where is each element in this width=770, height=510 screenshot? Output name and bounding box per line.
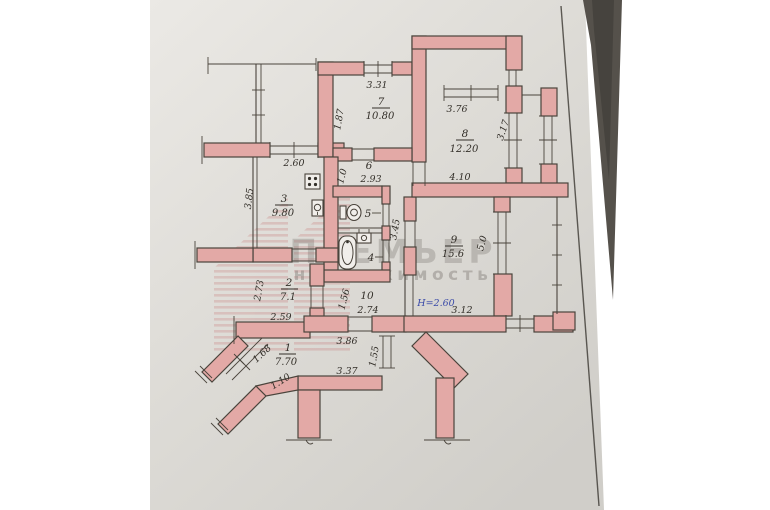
wall (372, 316, 406, 332)
wall (298, 390, 320, 438)
wall (436, 378, 454, 438)
dim-label: 4.10 (448, 172, 470, 183)
wall (412, 183, 568, 197)
toilet-icon (340, 205, 361, 221)
room-area-label: 15.6 (442, 249, 465, 260)
dim-label: 2.93 (359, 174, 381, 185)
wall (374, 148, 412, 161)
room-number-label: 6 (366, 160, 373, 172)
dim-label: 3.31 (366, 80, 387, 91)
room-area-label: 10.80 (366, 111, 395, 122)
wall (318, 62, 333, 157)
wall (404, 316, 506, 332)
wall (310, 264, 324, 286)
wall (197, 248, 253, 262)
wall (298, 376, 382, 390)
room-number-label: 5 (365, 208, 372, 220)
wall (304, 316, 348, 332)
stove-icon (305, 174, 320, 189)
room-number-label: 1 (285, 342, 292, 354)
wall (382, 186, 390, 204)
kitchen-sink-icon (312, 200, 323, 216)
wall (316, 248, 338, 262)
wall (494, 197, 510, 212)
room-area-label: 9.80 (272, 208, 295, 219)
ceiling-height-note: Н=2.60 (416, 298, 454, 309)
room-area-label: 12.20 (450, 144, 479, 155)
room-number-label: 8 (462, 128, 469, 140)
wall (404, 197, 416, 221)
dim-label: 2.59 (269, 312, 291, 323)
dim-label: 2.74 (356, 305, 378, 316)
dim-label: 3.76 (446, 104, 467, 115)
wall (204, 143, 270, 157)
wall (253, 248, 292, 262)
room-number-label: 10 (360, 290, 374, 302)
wall (553, 312, 575, 330)
floor-plan-photo: ПРЕМЬЕР недвижимость (0, 0, 770, 510)
wall (236, 322, 310, 338)
room-number-label: 7 (378, 96, 385, 108)
floor-plan-canvas: ПРЕМЬЕР недвижимость (0, 0, 770, 510)
room-number-label: 3 (281, 193, 288, 205)
room-number-label: 9 (451, 234, 458, 246)
wall (541, 88, 557, 116)
room-number-label: 2 (285, 277, 293, 289)
wall (318, 62, 364, 75)
room-number-label: 4 (367, 252, 375, 264)
wall (506, 86, 522, 113)
dim-label: 2.60 (282, 158, 304, 169)
wall (412, 36, 520, 49)
dim-label: 3.37 (336, 366, 358, 377)
wall (333, 186, 382, 197)
wall (404, 247, 416, 275)
room-area-label: 7.1 (280, 292, 296, 303)
wall (506, 168, 522, 183)
bathtub-icon (339, 236, 356, 269)
wall (392, 62, 412, 75)
wall (506, 36, 522, 70)
dim-label: 3.86 (336, 336, 357, 347)
wall (412, 36, 426, 162)
wall (494, 274, 512, 316)
room-area-label: 7.70 (275, 357, 298, 368)
wall (324, 270, 390, 282)
